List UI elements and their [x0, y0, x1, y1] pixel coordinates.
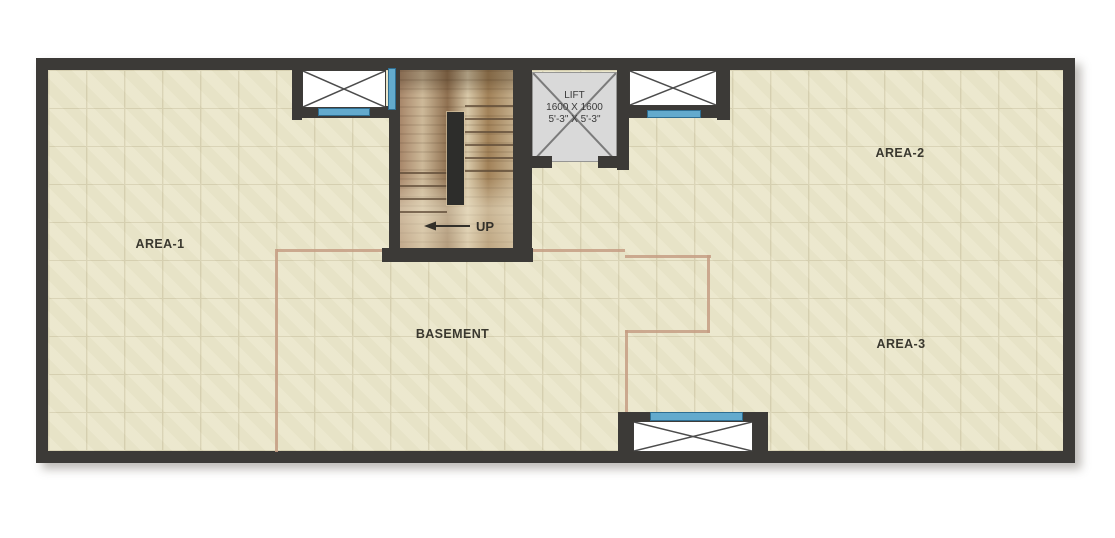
- floor-plan-page: UP LIFT 1600 X 1600 5'-3" X 5'-3": [0, 0, 1115, 538]
- stair-tread: [465, 131, 513, 133]
- stair-tread: [465, 144, 513, 146]
- basement-boundary-line: [707, 255, 710, 333]
- stair-tread: [400, 198, 447, 200]
- stair-bottom-wall: [382, 248, 533, 262]
- window-x-icon: [303, 71, 385, 107]
- window-jamb: [753, 412, 768, 452]
- stair-tread: [465, 157, 513, 159]
- area1-label: AREA-1: [110, 237, 210, 251]
- basement-boundary-line: [625, 330, 710, 333]
- basement-label: BASEMENT: [390, 327, 515, 341]
- glass-strip: [318, 108, 370, 116]
- stair-tread: [465, 118, 513, 120]
- area2-label: AREA-2: [850, 146, 950, 160]
- up-label: UP: [476, 219, 494, 234]
- area3-label: AREA-3: [851, 337, 951, 351]
- up-arrow-icon: [423, 220, 471, 232]
- stair-tread: [465, 170, 513, 172]
- stair-tread: [400, 172, 447, 174]
- lift-label: LIFT 1600 X 1600 5'-3" X 5'-3": [533, 90, 616, 126]
- lift-shaft: LIFT 1600 X 1600 5'-3" X 5'-3": [532, 72, 617, 162]
- stair-tread: [465, 105, 513, 107]
- glass-strip: [388, 68, 396, 110]
- stair-direction: UP: [423, 218, 503, 234]
- lift-dimensions-ft: 5'-3" X 5'-3": [533, 114, 616, 126]
- lift-door-jamb: [532, 156, 552, 168]
- window-x-icon: [630, 71, 716, 105]
- window-jamb: [618, 412, 633, 452]
- window-top-right: [629, 70, 717, 106]
- window-bottom: [633, 421, 753, 452]
- glass-strip: [650, 412, 743, 421]
- stair-tread: [400, 211, 447, 213]
- basement-boundary-line: [625, 255, 711, 258]
- window-x-icon: [634, 422, 752, 451]
- stair-tread: [400, 185, 447, 187]
- basement-boundary-line: [275, 249, 278, 452]
- stair-void: [447, 112, 464, 205]
- glass-strip: [647, 110, 701, 118]
- lift-name: LIFT: [533, 90, 616, 102]
- stair-right-wall: [513, 70, 532, 262]
- basement-boundary-line: [625, 330, 628, 414]
- lift-dimensions-mm: 1600 X 1600: [533, 102, 616, 114]
- window-top-left: [302, 70, 386, 108]
- lift-door-jamb: [598, 156, 617, 168]
